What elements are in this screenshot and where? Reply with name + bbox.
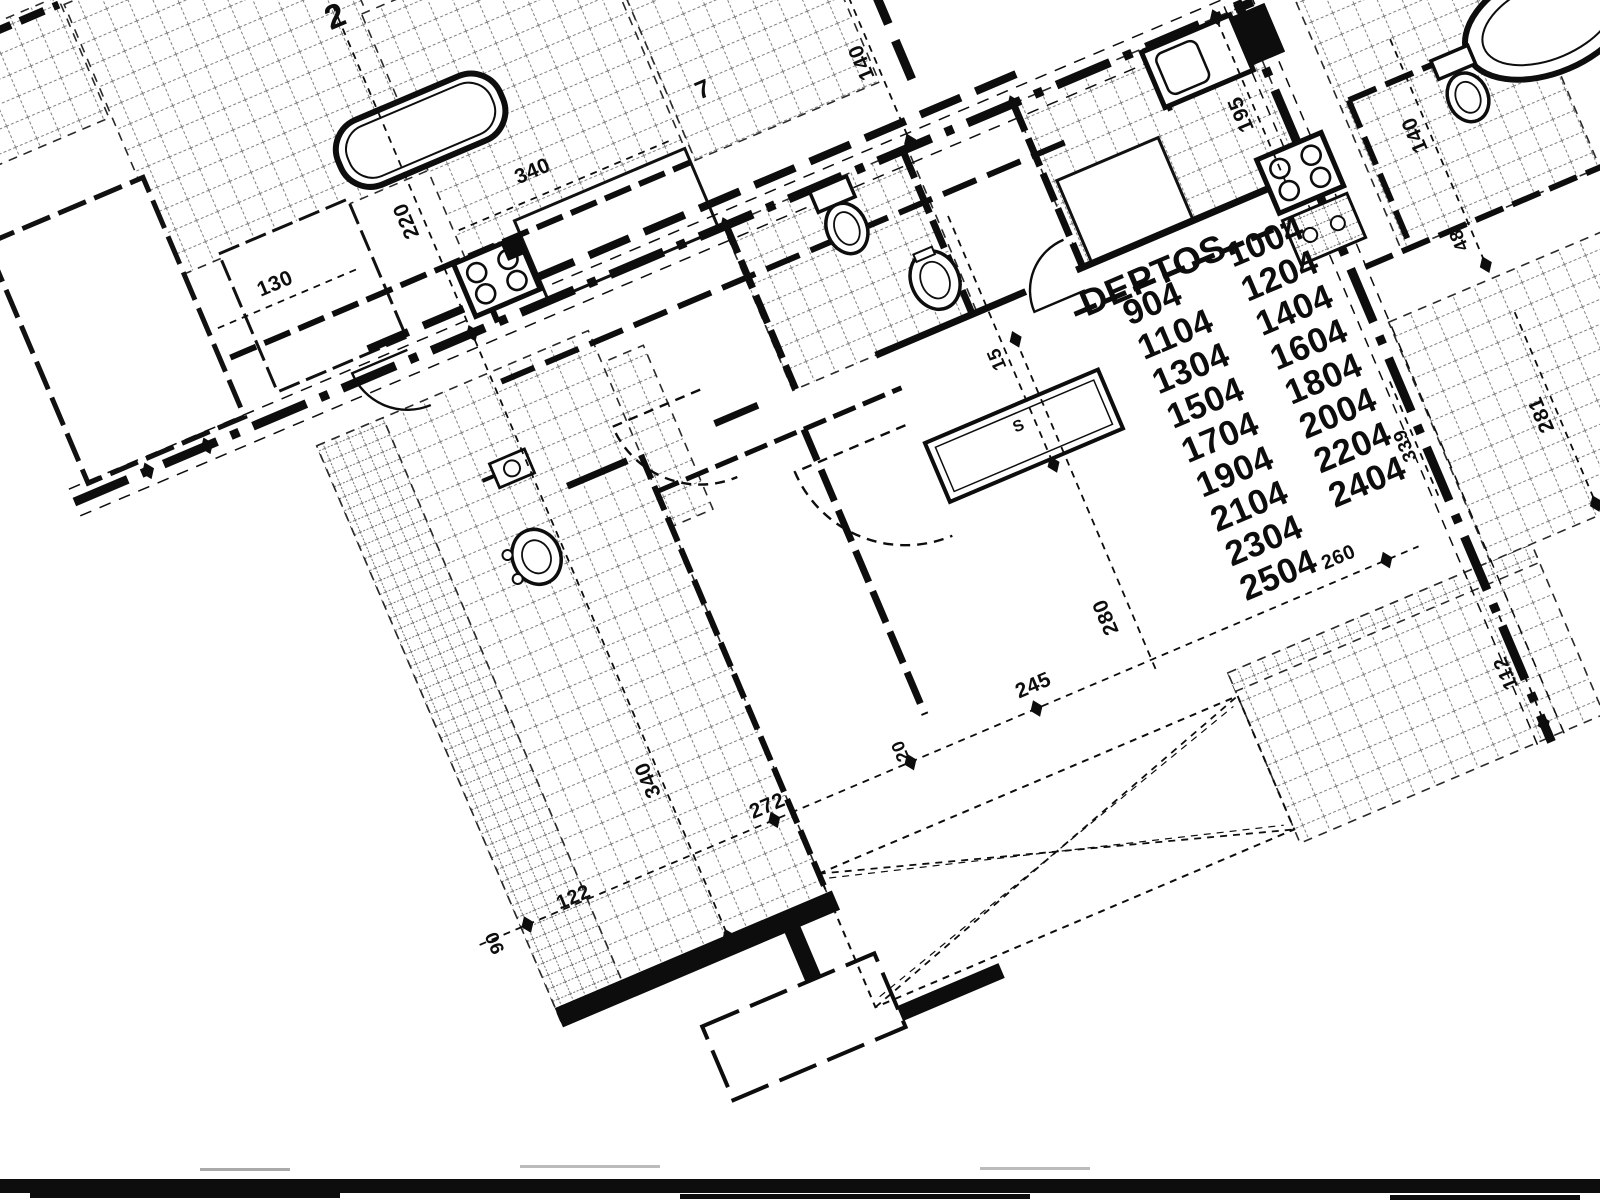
floor-plan-scan: 3402201301401951404815281339280260245272…	[0, 0, 1600, 1200]
scanned-floor-plan-page: 3402201301401951404815281339280260245272…	[0, 0, 1600, 1200]
